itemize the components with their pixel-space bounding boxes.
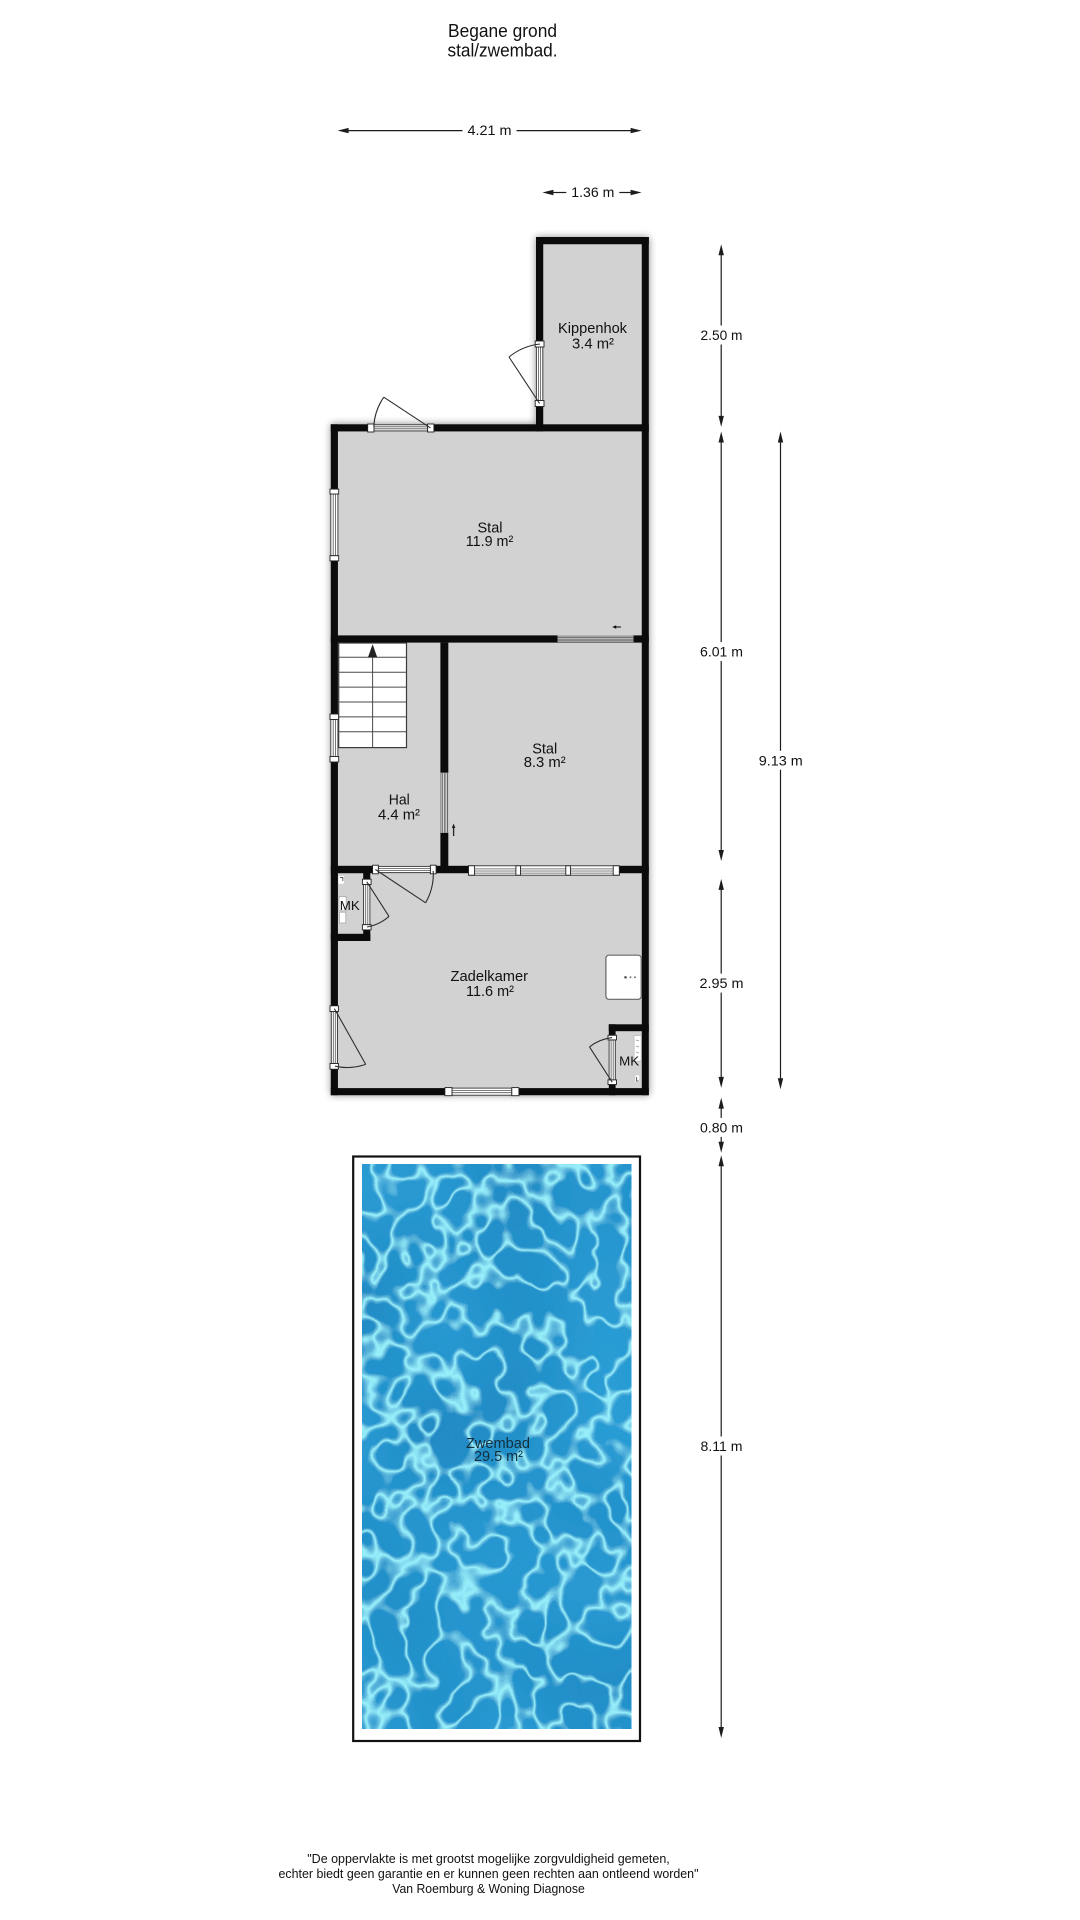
svg-text:"De oppervlakte is met grootst: "De oppervlakte is met grootst mogelijke… bbox=[307, 1852, 670, 1866]
svg-text:2.50 m: 2.50 m bbox=[701, 327, 743, 343]
svg-text:11.6 m²: 11.6 m² bbox=[466, 983, 514, 1000]
svg-text:2.95 m: 2.95 m bbox=[700, 975, 744, 991]
svg-text:29.5 m²: 29.5 m² bbox=[474, 1448, 523, 1465]
svg-text:8.11 m: 8.11 m bbox=[701, 1438, 743, 1454]
svg-text:8.3 m²: 8.3 m² bbox=[524, 754, 566, 771]
svg-text:MK: MK bbox=[340, 898, 360, 913]
svg-text:0.80 m: 0.80 m bbox=[700, 1120, 743, 1136]
svg-text:4.4 m²: 4.4 m² bbox=[378, 807, 420, 824]
svg-text:11.9 m²: 11.9 m² bbox=[466, 533, 514, 550]
svg-text:MK: MK bbox=[619, 1054, 639, 1069]
svg-text:4.21 m: 4.21 m bbox=[468, 122, 512, 138]
svg-text:Van Roemburg & Woning Diagnose: Van Roemburg & Woning Diagnose bbox=[392, 1882, 585, 1896]
svg-text:9.13 m: 9.13 m bbox=[759, 752, 803, 768]
svg-text:6.01 m: 6.01 m bbox=[700, 644, 743, 660]
svg-text:3.4 m²: 3.4 m² bbox=[572, 336, 614, 353]
svg-text:1.36 m: 1.36 m bbox=[571, 184, 614, 200]
svg-text:Begane grond: Begane grond bbox=[448, 21, 557, 41]
svg-text:echter biedt geen garantie en: echter biedt geen garantie en er kunnen … bbox=[279, 1867, 699, 1881]
svg-text:stal/zwembad.: stal/zwembad. bbox=[448, 41, 558, 61]
